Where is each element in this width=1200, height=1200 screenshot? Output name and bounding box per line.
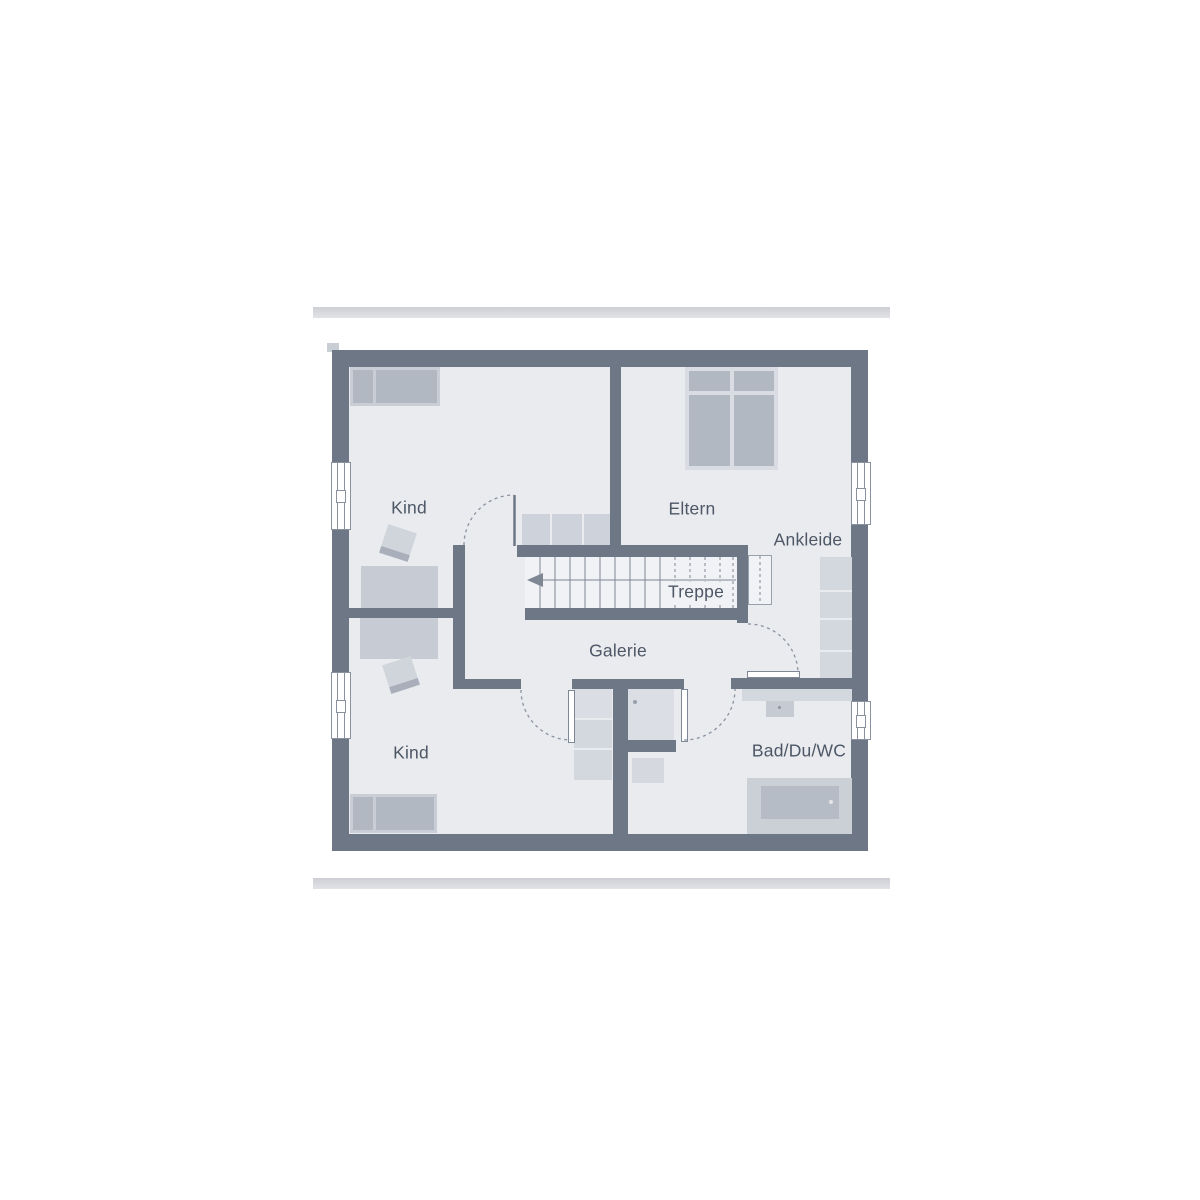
sink-drain-dot [778, 706, 781, 709]
bed-mattress [734, 395, 774, 466]
door-leaf-bad [681, 689, 688, 742]
bathtub-symbol [747, 778, 852, 834]
wardrobe-divider [574, 718, 612, 720]
desk-symbol-kind-bottom [360, 618, 438, 659]
shower-drain-dot [633, 700, 637, 704]
wardrobe-divider [820, 650, 852, 652]
top-frame-bar [313, 307, 890, 318]
window-symbol-left-bottom [331, 672, 351, 739]
room-label-eltern: Eltern [669, 499, 716, 520]
window-handle [336, 490, 346, 503]
wardrobe-divider [574, 748, 612, 750]
bed-pillow [689, 371, 730, 391]
window-handle [336, 700, 346, 713]
desk-symbol-kind-top [361, 566, 438, 608]
wall-central-vertical [613, 689, 628, 834]
window-handle [856, 488, 866, 501]
wall-stair-top [517, 545, 748, 557]
room-label-galerie: Galerie [589, 641, 647, 662]
wall-stair-bottom [525, 608, 748, 620]
bed-pillow [353, 370, 373, 403]
wall-central-top [572, 679, 684, 689]
window-symbol-left-top [331, 462, 351, 530]
wardrobe-divider [820, 590, 852, 592]
room-label-treppe: Treppe [665, 582, 727, 603]
bottom-frame-bar [313, 878, 890, 889]
door-leaf-kind-bottom [568, 690, 575, 743]
sideboard-symbol [522, 514, 612, 546]
bed-pillow [353, 797, 373, 830]
bed-symbol-kind-top [350, 367, 440, 406]
double-bed-symbol-eltern [685, 367, 778, 470]
vanity-counter-symbol [742, 689, 852, 701]
bed-symbol-kind-bottom [350, 794, 437, 833]
floor-plan-page: Kind Eltern Ankleide Treppe Galerie Kind… [0, 0, 1200, 1200]
window-handle [856, 715, 866, 728]
wall-stair-right [737, 545, 748, 623]
window-symbol-right-bottom [851, 701, 871, 740]
wall-shower-stub [628, 740, 676, 752]
sideboard-divider [550, 514, 552, 546]
bed-mattress [376, 370, 437, 403]
wardrobe-symbol-ankleide [820, 557, 852, 679]
sink-symbol [766, 701, 794, 717]
bed-mattress [376, 797, 434, 830]
shower-symbol [628, 689, 674, 740]
bed-mattress [689, 395, 730, 466]
room-label-bad-du-wc: Bad/Du/WC [752, 741, 846, 762]
wardrobe-symbol-kind-bottom [574, 689, 612, 780]
room-label-kind-top: Kind [391, 498, 427, 519]
toilet-symbol [632, 758, 664, 783]
bathtub-basin [761, 786, 839, 819]
bed-pillow [734, 371, 774, 391]
room-label-ankleide: Ankleide [774, 530, 843, 551]
wall-kind-divider [349, 608, 456, 618]
wardrobe-cell [574, 689, 612, 718]
wall-kind-eltern [610, 367, 621, 557]
window-symbol-right-top [851, 462, 871, 525]
wall-galerie-bottom-left [453, 679, 521, 689]
door-leaf-ankleide [747, 671, 800, 678]
wardrobe-divider [820, 618, 852, 620]
wall-bad-top [731, 678, 852, 689]
sideboard-divider [582, 514, 584, 546]
bathtub-drain-dot [829, 800, 833, 804]
room-label-kind-bottom: Kind [393, 743, 429, 764]
